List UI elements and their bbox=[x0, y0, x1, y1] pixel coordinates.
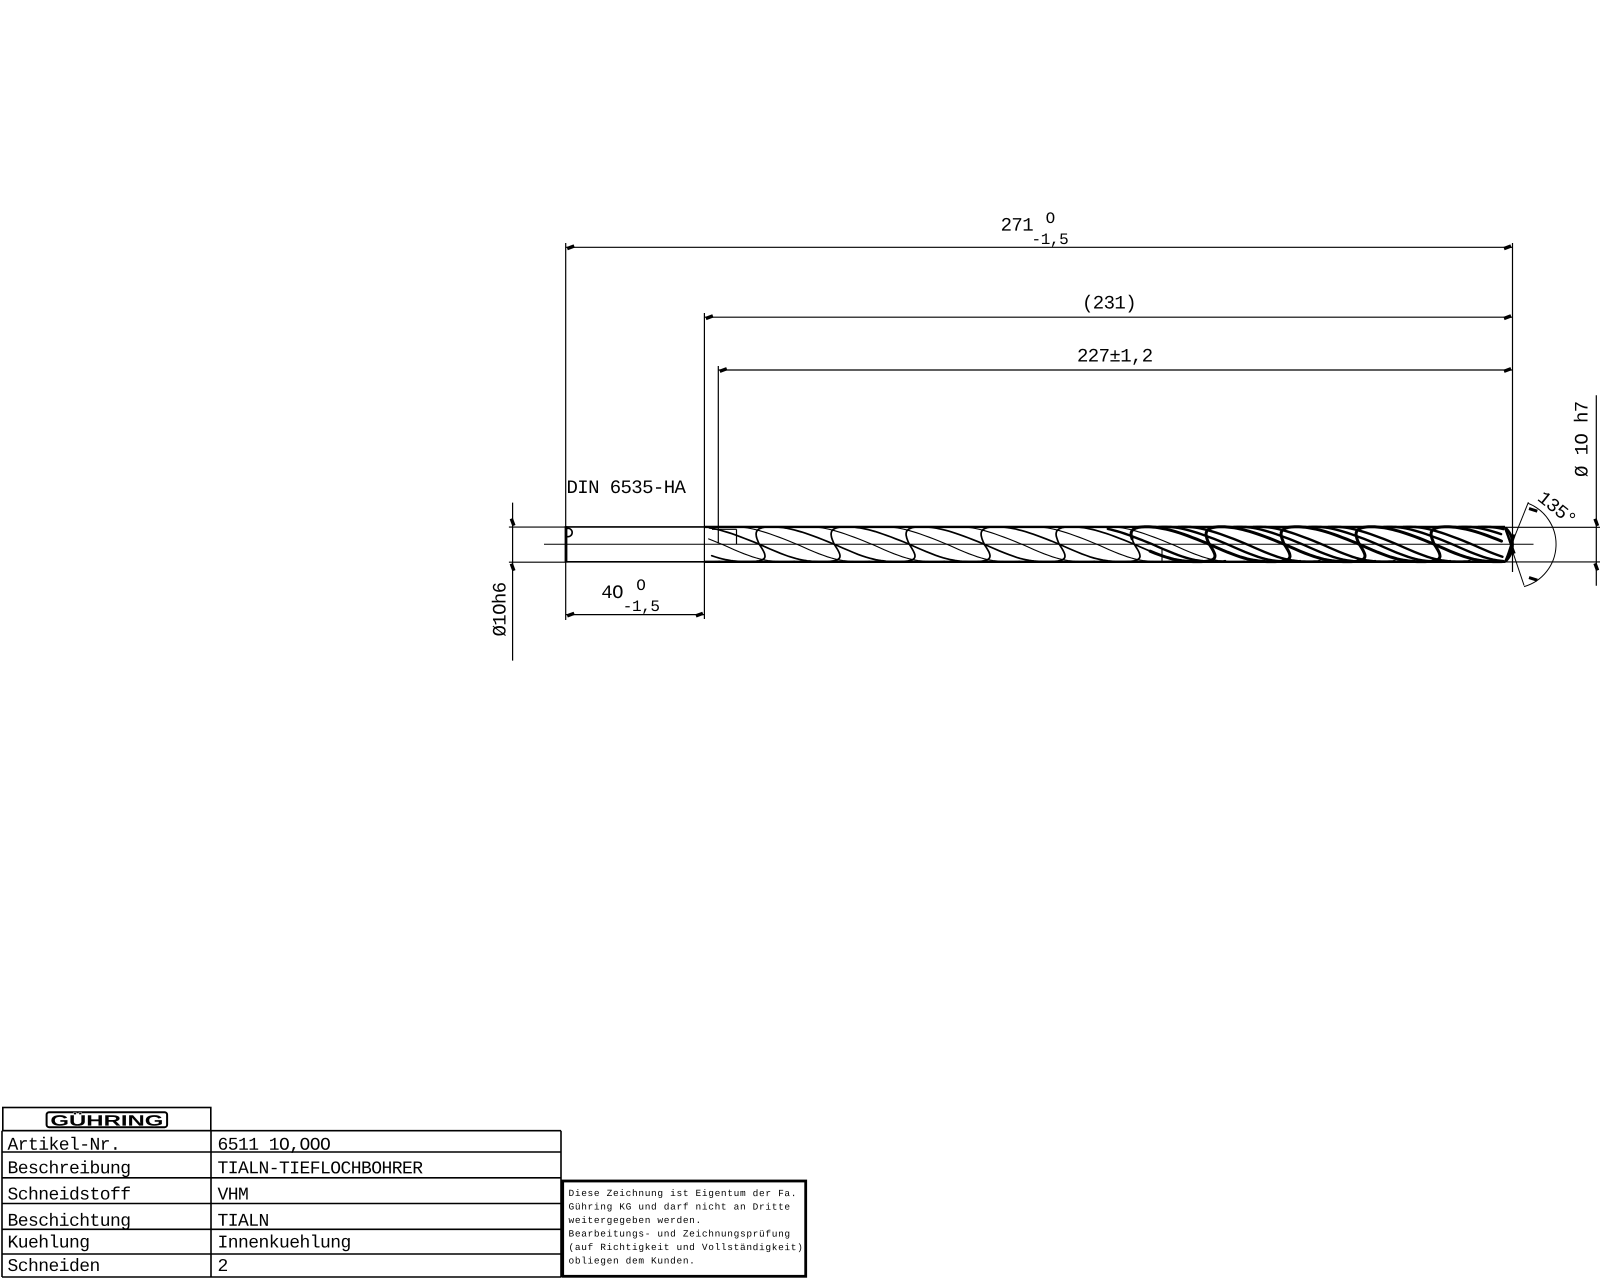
svg-text:(auf Richtigkeit und Vollständ: (auf Richtigkeit und Vollständigkeit) bbox=[568, 1242, 803, 1253]
svg-text:Gühring KG und darf nicht an D: Gühring KG und darf nicht an Dritte bbox=[568, 1202, 790, 1213]
svg-text:Diese Zeichnung ist Eigentum d: Diese Zeichnung ist Eigentum der Fa. bbox=[568, 1188, 797, 1199]
svg-text:Bearbeitungs- und Zeichnungspr: Bearbeitungs- und Zeichnungsprüfung bbox=[568, 1229, 790, 1240]
svg-text:Ø 1O h7: Ø 1O h7 bbox=[1572, 401, 1594, 477]
svg-text:O: O bbox=[636, 577, 645, 595]
svg-text:Schneiden: Schneiden bbox=[7, 1257, 99, 1277]
svg-text:-1,5: -1,5 bbox=[1031, 231, 1068, 249]
svg-text:-1,5: -1,5 bbox=[623, 598, 660, 616]
svg-text:2: 2 bbox=[217, 1257, 227, 1277]
svg-text:Beschichtung: Beschichtung bbox=[7, 1212, 130, 1232]
svg-text:6511 1O,OOO: 6511 1O,OOO bbox=[217, 1136, 330, 1156]
svg-text:VHM: VHM bbox=[217, 1186, 248, 1206]
svg-text:DIN 6535-HA: DIN 6535-HA bbox=[566, 477, 686, 499]
svg-text:Artikel-Nr.: Artikel-Nr. bbox=[7, 1136, 120, 1156]
svg-text:Schneidstoff: Schneidstoff bbox=[7, 1186, 130, 1206]
svg-text:Kuehlung: Kuehlung bbox=[7, 1234, 89, 1254]
svg-text:O: O bbox=[1046, 210, 1055, 228]
svg-text:Beschreibung: Beschreibung bbox=[7, 1159, 130, 1179]
svg-text:TIALN: TIALN bbox=[217, 1212, 268, 1232]
svg-text:Innenkuehlung: Innenkuehlung bbox=[217, 1234, 350, 1254]
svg-text:271: 271 bbox=[1001, 215, 1034, 237]
svg-text:(231): (231) bbox=[1082, 293, 1136, 315]
svg-text:227±1,2: 227±1,2 bbox=[1077, 346, 1153, 368]
svg-text:weitergegeben werden.: weitergegeben werden. bbox=[568, 1215, 701, 1226]
svg-text:4O: 4O bbox=[601, 582, 623, 604]
svg-text:TIALN-TIEFLOCHBOHRER: TIALN-TIEFLOCHBOHRER bbox=[217, 1159, 423, 1179]
svg-text:Ø1Oh6: Ø1Oh6 bbox=[490, 582, 512, 636]
svg-text:obliegen dem Kunden.: obliegen dem Kunden. bbox=[568, 1256, 695, 1267]
svg-text:GÜHRING: GÜHRING bbox=[50, 1113, 163, 1130]
